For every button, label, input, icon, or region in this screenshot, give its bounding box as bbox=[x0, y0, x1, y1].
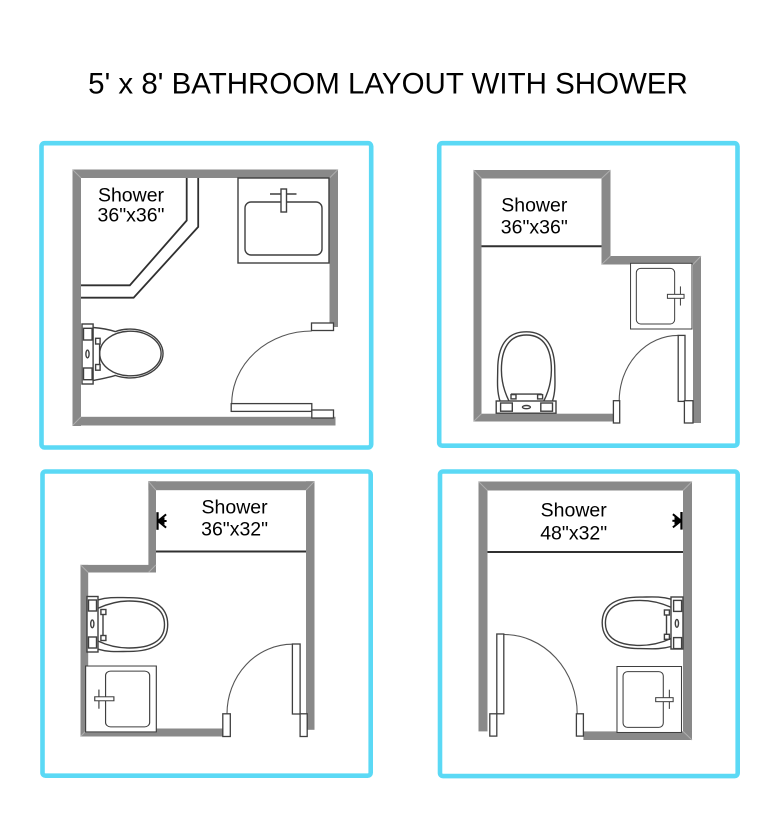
svg-text:36"x36": 36"x36" bbox=[501, 216, 568, 238]
svg-text:48"x32": 48"x32" bbox=[540, 523, 607, 545]
svg-text:5' x 8' BATHROOM LAYOUT WITH S: 5' x 8' BATHROOM LAYOUT WITH SHOWER bbox=[88, 68, 688, 101]
svg-text:Shower: Shower bbox=[202, 497, 269, 519]
svg-text:Shower: Shower bbox=[98, 185, 165, 207]
svg-text:36"x32": 36"x32" bbox=[201, 519, 268, 541]
svg-text:36"x36": 36"x36" bbox=[98, 205, 165, 227]
svg-text:Shower: Shower bbox=[541, 500, 608, 522]
svg-text:Shower: Shower bbox=[501, 195, 568, 217]
